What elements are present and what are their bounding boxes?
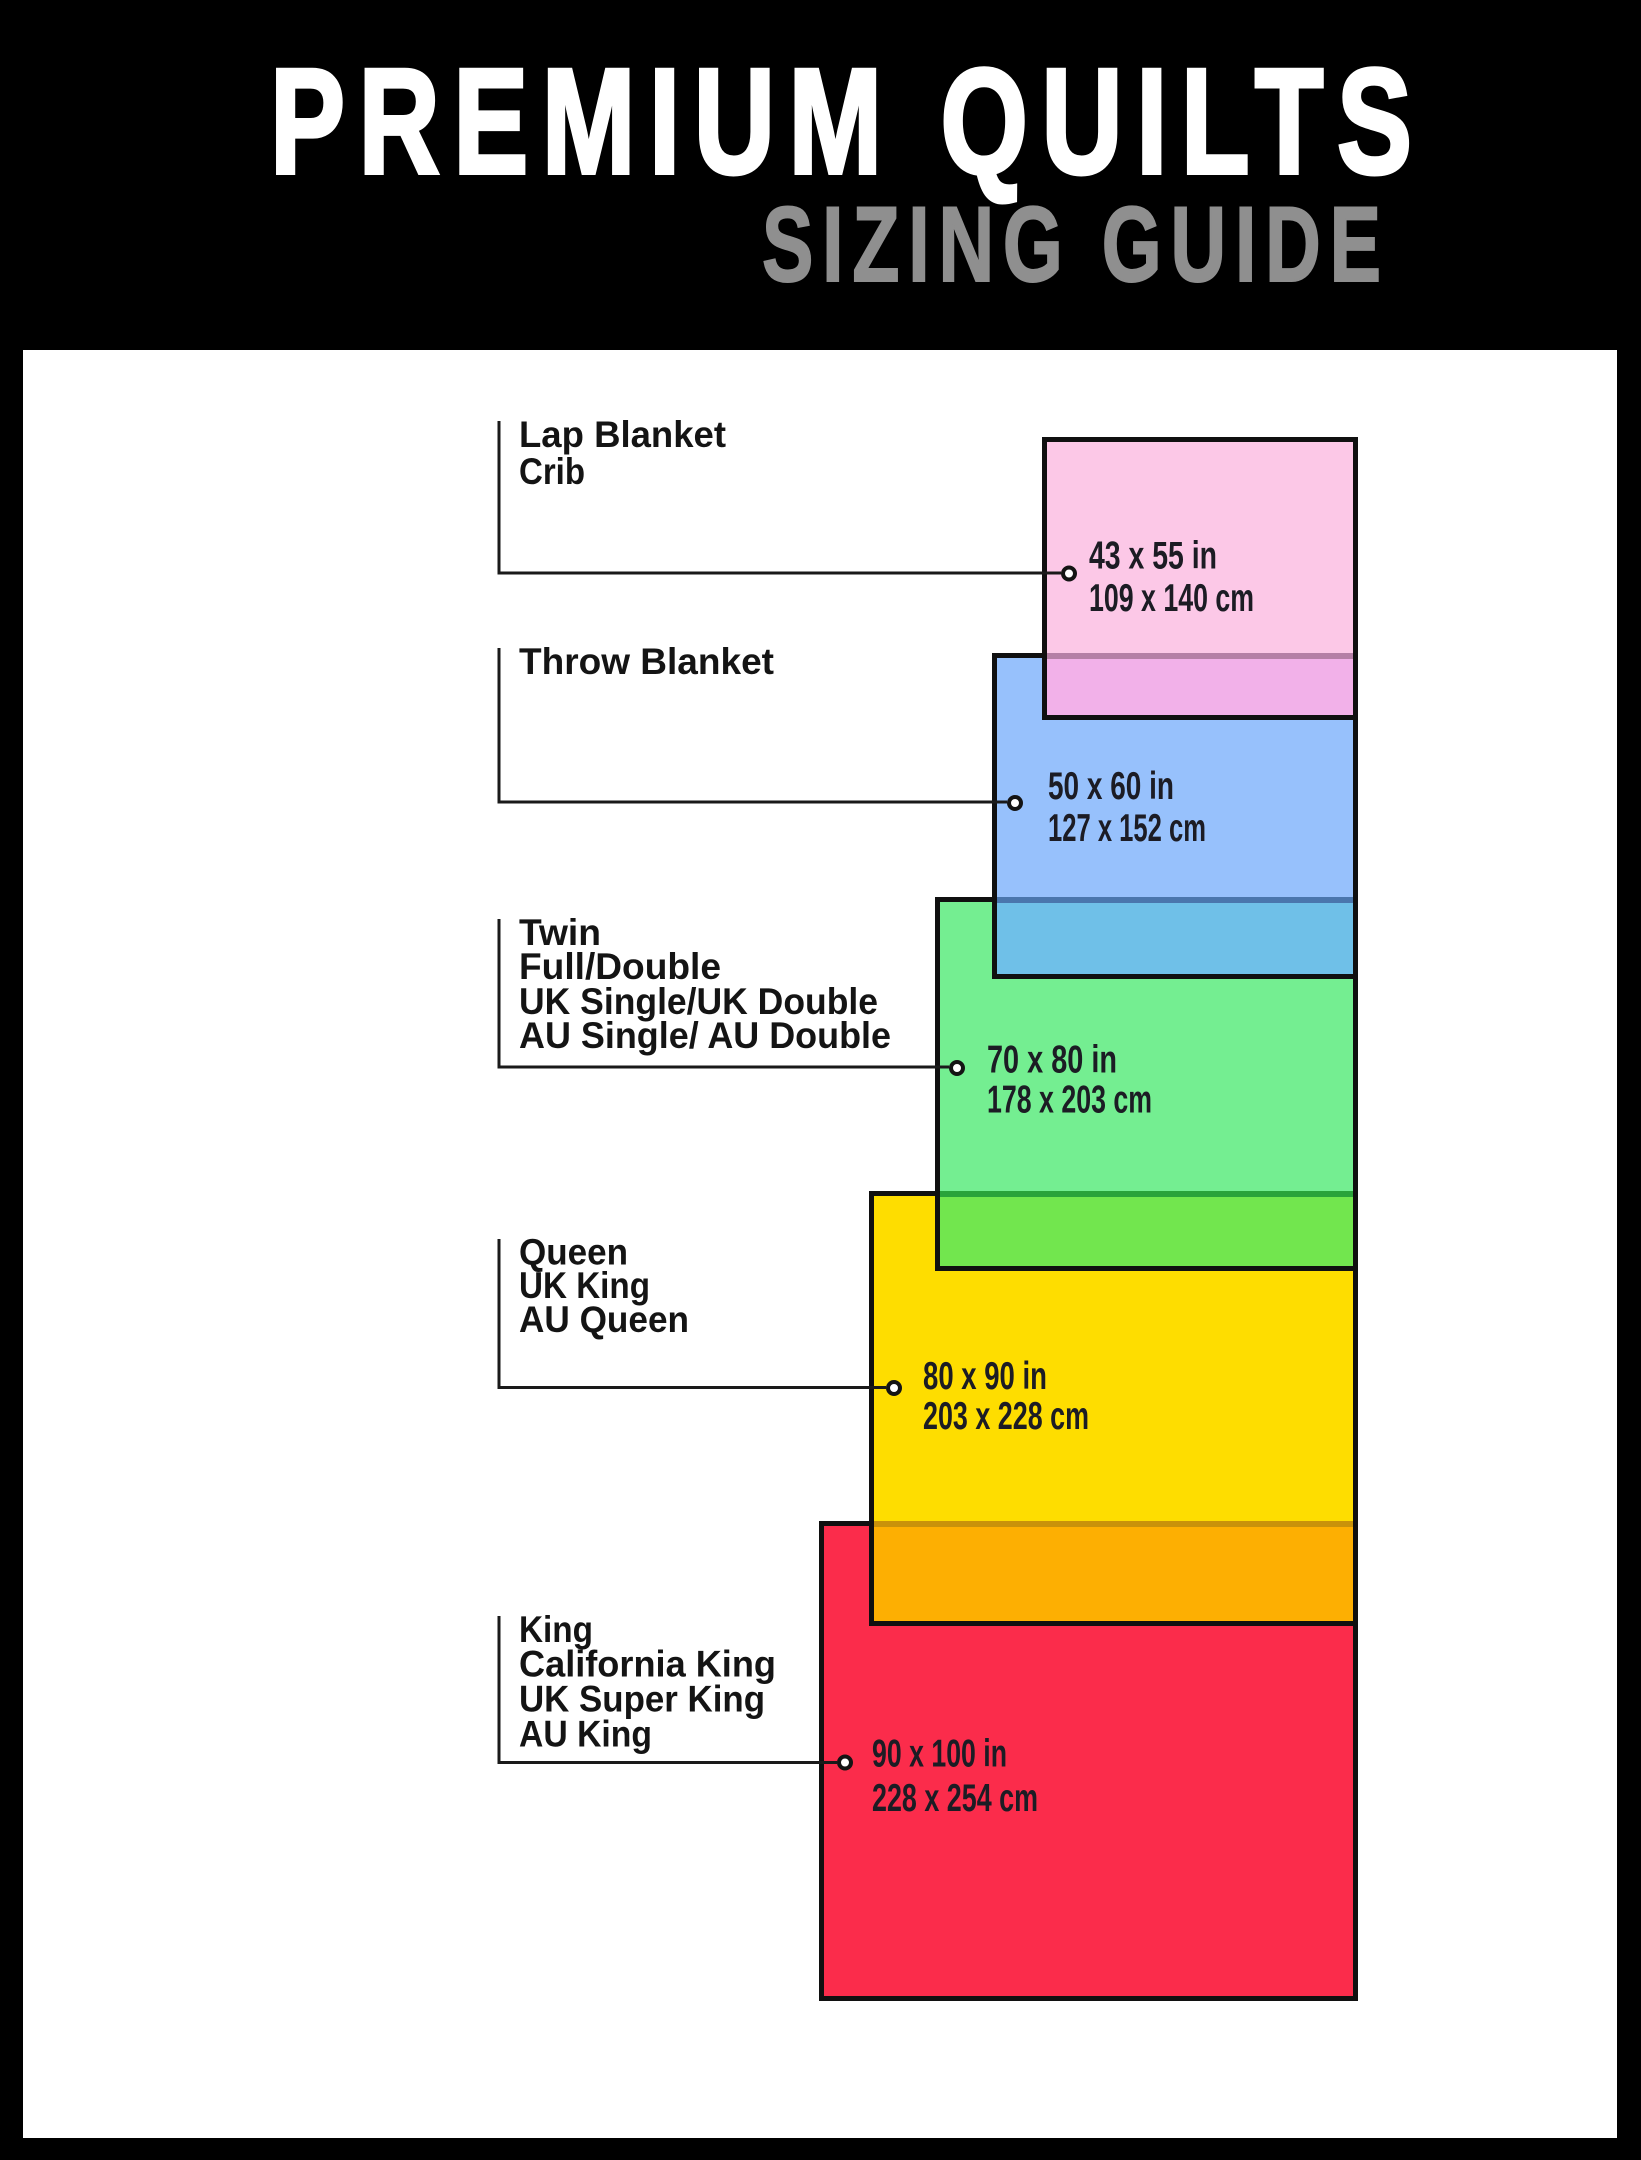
svg-text:AU Single/ AU Double: AU Single/ AU Double [519, 1015, 891, 1056]
svg-text:127 x 152 cm: 127 x 152 cm [1048, 807, 1206, 850]
svg-text:228 x 254 cm: 228 x 254 cm [872, 1777, 1038, 1820]
svg-text:Lap Blanket: Lap Blanket [519, 414, 726, 455]
svg-text:AU King: AU King [519, 1714, 652, 1755]
svg-text:203 x 228 cm: 203 x 228 cm [923, 1395, 1089, 1438]
svg-text:Crib: Crib [519, 451, 585, 492]
svg-text:70 x 80 in: 70 x 80 in [987, 1039, 1117, 1082]
svg-text:90 x 100 in: 90 x 100 in [872, 1733, 1007, 1776]
svg-text:Throw Blanket: Throw Blanket [519, 641, 774, 682]
svg-text:AU Queen: AU Queen [519, 1299, 689, 1340]
svg-text:50 x 60 in: 50 x 60 in [1048, 765, 1174, 808]
svg-text:109 x 140 cm: 109 x 140 cm [1089, 577, 1254, 620]
svg-text:178 x 203 cm: 178 x 203 cm [987, 1079, 1152, 1122]
svg-text:43 x 55 in: 43 x 55 in [1089, 535, 1217, 578]
svg-text:80 x 90 in: 80 x 90 in [923, 1355, 1047, 1398]
svg-text:SIZING GUIDE: SIZING GUIDE [762, 185, 1381, 304]
